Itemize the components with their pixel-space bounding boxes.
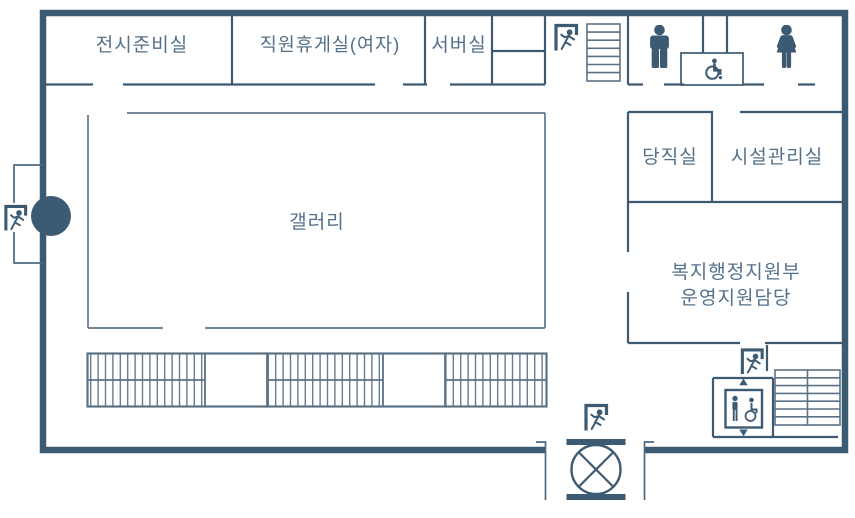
up-arrow-icon — [739, 379, 747, 386]
elevator-icon — [536, 439, 654, 500]
passenger-head — [732, 396, 737, 401]
room-label-gallery: 갤러리 — [289, 211, 344, 233]
room-label-duty-room: 당직실 — [642, 146, 697, 168]
room-label-server-room: 서버실 — [431, 34, 486, 56]
display-stand-strip — [88, 354, 547, 407]
emergency-exit-icon-top — [556, 26, 577, 51]
passenger-body — [732, 402, 737, 410]
stairs-bottom-steps — [775, 370, 840, 425]
left-exit-marker-circle — [31, 196, 71, 236]
wheelchair-user-wheel — [746, 411, 756, 421]
emergency-exit-icon-bottom-right — [742, 350, 762, 374]
stairs-top-icon — [587, 24, 620, 81]
stairs-top-steps — [587, 32, 620, 73]
passenger-leg-right — [736, 410, 738, 421]
room-label-welfare-admin-line2: 운영지원담당 — [681, 287, 792, 309]
floorplan-svg: 전시준비실 직원휴게실(여자) 서버실 갤러리 당직실 시설관리실 복지행정지원… — [0, 0, 855, 518]
accessible-elevator-icon — [726, 379, 763, 437]
room-label-facility-management: 시설관리실 — [731, 146, 823, 168]
room-labels: 전시준비실 직원휴게실(여자) 서버실 갤러리 당직실 시설관리실 복지행정지원… — [96, 34, 823, 309]
womens-restroom-icon — [777, 25, 795, 67]
emergency-exit-icon-left — [6, 206, 26, 230]
wheelchair-booth-outline — [681, 53, 743, 85]
room-label-exhibition-prep: 전시준비실 — [96, 34, 188, 56]
down-arrow-icon — [739, 430, 747, 437]
mens-restroom-icon — [651, 25, 669, 68]
room-label-staff-lounge-women: 직원휴게실(여자) — [260, 34, 400, 55]
floorplan-canvas: 전시준비실 직원휴게실(여자) 서버실 갤러리 당직실 시설관리실 복지행정지원… — [0, 0, 855, 518]
wheelchair-user-head — [749, 398, 754, 403]
emergency-exit-icon-bottom-center — [586, 406, 607, 431]
passenger-leg-left — [733, 410, 735, 421]
room-label-welfare-admin-line1: 복지행정지원부 — [671, 261, 800, 283]
wheelchair-accessible-icon — [706, 58, 722, 79]
stairs-bottom-icon — [775, 370, 840, 425]
